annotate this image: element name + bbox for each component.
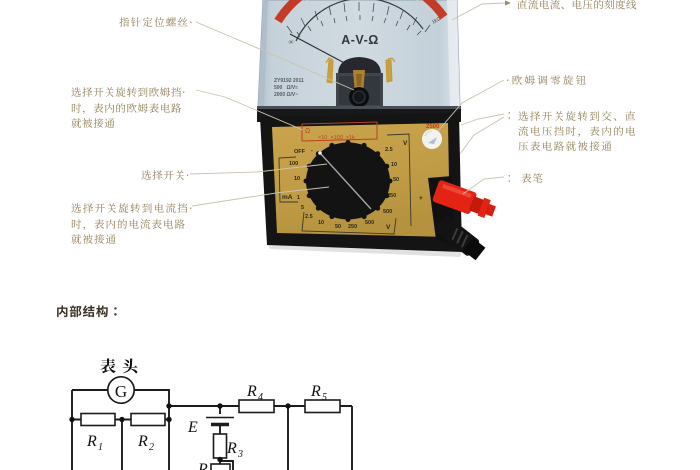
- svg-text:2: 2: [149, 442, 154, 453]
- svg-text:ZY9192 2011: ZY9192 2011: [274, 78, 304, 84]
- svg-text:10: 10: [294, 176, 300, 182]
- svg-text:5: 5: [301, 205, 304, 211]
- svg-text:mA: mA: [282, 194, 293, 201]
- svg-text:2.5: 2.5: [305, 214, 313, 220]
- svg-text:V: V: [386, 224, 391, 231]
- svg-text:1: 1: [98, 442, 103, 453]
- svg-text:R: R: [86, 433, 97, 450]
- svg-text:50: 50: [335, 224, 341, 230]
- svg-text:×10 ×100 ×1k: ×10 ×100 ×1k: [318, 135, 355, 141]
- svg-text:E: E: [187, 419, 198, 436]
- svg-text:250: 250: [348, 224, 357, 230]
- svg-text:G: G: [115, 382, 127, 401]
- svg-text:R: R: [226, 440, 237, 457]
- svg-text:500: 500: [383, 209, 392, 215]
- svg-text:500 Ω/V≈: 500 Ω/V≈: [274, 85, 298, 91]
- svg-text:2000 Ω/V~: 2000 Ω/V~: [274, 92, 298, 98]
- svg-text:∞: ∞: [289, 38, 294, 46]
- svg-text:3: 3: [237, 449, 243, 460]
- svg-text:R: R: [137, 433, 148, 450]
- svg-text:50: 50: [393, 177, 399, 183]
- svg-text:10: 10: [391, 162, 397, 168]
- svg-text:500: 500: [365, 220, 374, 226]
- svg-text:Ω: Ω: [305, 128, 310, 135]
- svg-text:-: -: [311, 148, 313, 154]
- svg-text:V: V: [403, 140, 408, 147]
- svg-text:R: R: [310, 383, 321, 400]
- svg-text:R: R: [246, 383, 257, 400]
- svg-text:2.5: 2.5: [385, 147, 393, 153]
- svg-text:4: 4: [258, 392, 263, 403]
- svg-text:10: 10: [318, 220, 324, 226]
- svg-text:+: +: [419, 195, 423, 202]
- svg-text:R: R: [197, 461, 208, 470]
- svg-text:1: 1: [297, 195, 300, 201]
- svg-text:100: 100: [289, 161, 298, 167]
- svg-text:5: 5: [322, 392, 327, 403]
- svg-text:A-V-Ω: A-V-Ω: [341, 33, 379, 47]
- svg-text:OFF: OFF: [294, 149, 306, 155]
